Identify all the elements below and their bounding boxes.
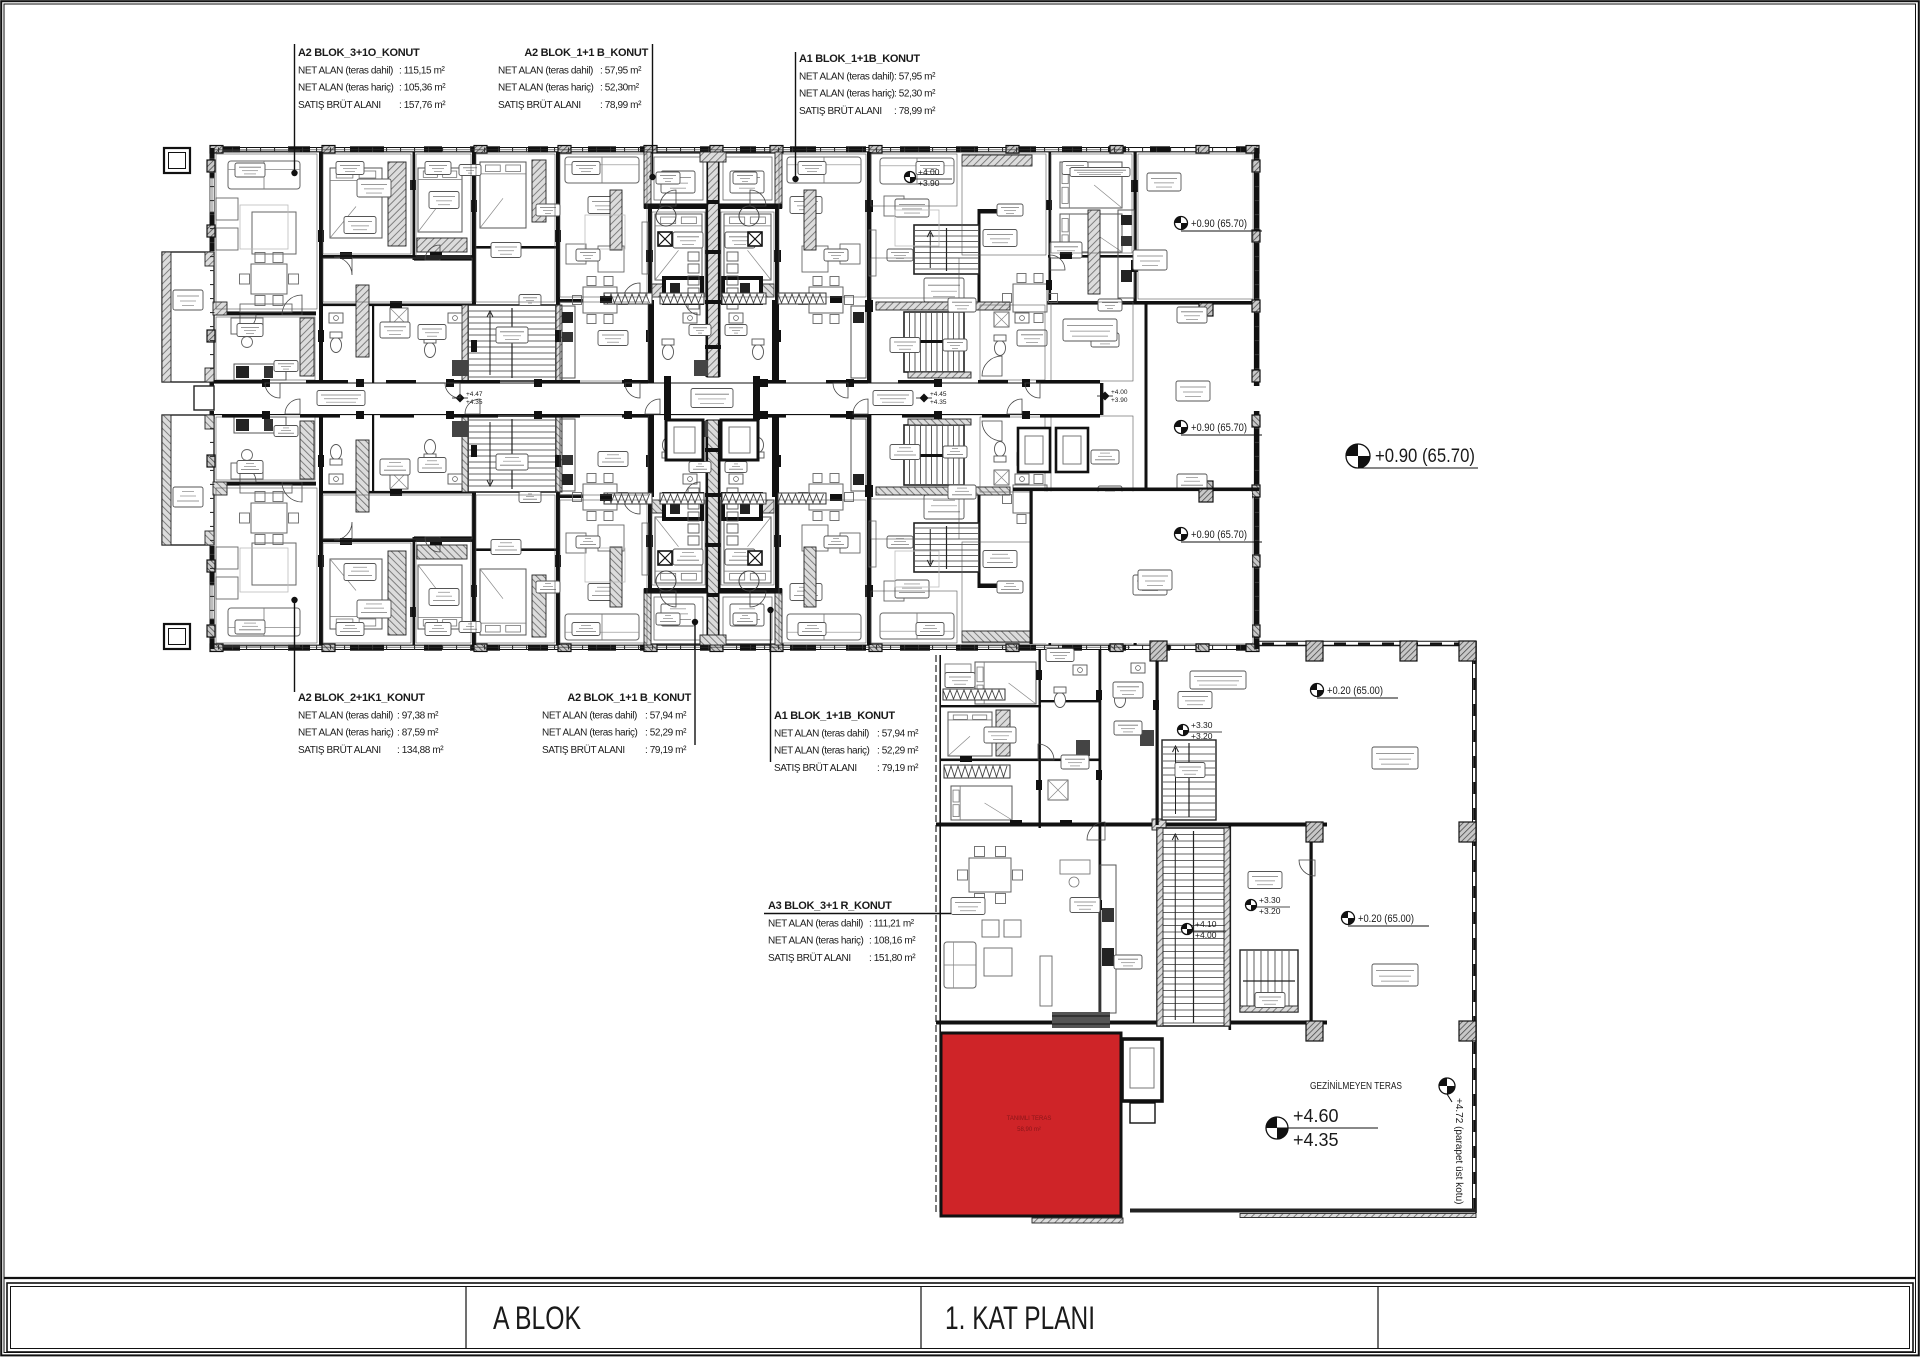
svg-text:: 157,76 m²: : 157,76 m² — [399, 100, 446, 111]
svg-text:SATIŞ BRÜT ALANI: SATIŞ BRÜT ALANI — [774, 762, 857, 774]
svg-text:A1 BLOK_1+1B_KONUT: A1 BLOK_1+1B_KONUT — [774, 710, 895, 722]
svg-text:+4.47: +4.47 — [466, 391, 483, 398]
svg-text:+0.20 (65.00): +0.20 (65.00) — [1327, 685, 1383, 697]
svg-text:+0.90 (65.70): +0.90 (65.70) — [1191, 218, 1247, 230]
svg-text:+4.72 (parapet üst kotu): +4.72 (parapet üst kotu) — [1453, 1098, 1464, 1204]
svg-text:: 78,99 m²: : 78,99 m² — [894, 106, 936, 117]
svg-text:: 52,29 m²: : 52,29 m² — [877, 746, 919, 757]
svg-text:A BLOK: A BLOK — [493, 1300, 581, 1336]
svg-text:A2 BLOK_3+1O_KONUT: A2 BLOK_3+1O_KONUT — [298, 47, 420, 59]
svg-text:NET ALAN (teras hariç): NET ALAN (teras hariç) — [768, 936, 864, 947]
svg-text:: 57,94 m²: : 57,94 m² — [877, 729, 919, 740]
svg-text:+4.60: +4.60 — [1293, 1106, 1339, 1126]
svg-text:+4.35: +4.35 — [1293, 1130, 1339, 1150]
svg-text:NET ALAN (teras hariç): NET ALAN (teras hariç) — [298, 728, 394, 739]
svg-text:SATIŞ BRÜT ALANI: SATIŞ BRÜT ALANI — [498, 99, 581, 111]
svg-text:: 111,21 m²: : 111,21 m² — [869, 919, 915, 930]
svg-text:NET ALAN (teras hariç): NET ALAN (teras hariç) — [542, 728, 638, 739]
svg-text:+3.30: +3.30 — [1259, 895, 1281, 905]
svg-text:NET ALAN (teras dahil): NET ALAN (teras dahil) — [799, 72, 894, 83]
svg-text:+3.30: +3.30 — [1191, 720, 1213, 730]
svg-text:A2 BLOK_1+1 B_KONUT: A2 BLOK_1+1 B_KONUT — [567, 692, 691, 704]
svg-text:: 115,15 m²: : 115,15 m² — [399, 66, 446, 77]
svg-text:SATIŞ BRÜT ALANI: SATIŞ BRÜT ALANI — [298, 744, 381, 756]
svg-text:A1 BLOK_1+1B_KONUT: A1 BLOK_1+1B_KONUT — [799, 53, 920, 65]
svg-text:NET ALAN (teras hariç): NET ALAN (teras hariç) — [799, 89, 895, 100]
svg-text:+4.00: +4.00 — [1111, 389, 1128, 396]
svg-text:+4.00: +4.00 — [1195, 930, 1217, 940]
svg-text:A2 BLOK_2+1K1_KONUT: A2 BLOK_2+1K1_KONUT — [298, 692, 425, 704]
svg-text:NET ALAN (teras hariç): NET ALAN (teras hariç) — [498, 83, 594, 94]
svg-text:TANIMLI TERAS: TANIMLI TERAS — [1007, 1116, 1052, 1122]
svg-text:A2 BLOK_1+1 B_KONUT: A2 BLOK_1+1 B_KONUT — [524, 47, 648, 59]
svg-text:NET ALAN (teras dahil): NET ALAN (teras dahil) — [298, 711, 393, 722]
svg-text:+0.90 (65.70): +0.90 (65.70) — [1191, 422, 1247, 434]
svg-text:+4.10: +4.10 — [1195, 919, 1217, 929]
svg-text:NET ALAN (teras dahil): NET ALAN (teras dahil) — [774, 729, 869, 740]
svg-text:1. KAT PLANI: 1. KAT PLANI — [945, 1300, 1095, 1336]
svg-text:: 108,16 m²: : 108,16 m² — [869, 936, 916, 947]
svg-text:+0.90 (65.70): +0.90 (65.70) — [1191, 529, 1247, 541]
svg-text:+3.90: +3.90 — [1111, 397, 1128, 404]
svg-text:A3 BLOK_3+1 R_KONUT: A3 BLOK_3+1 R_KONUT — [768, 900, 892, 912]
svg-text:: 52,30m²: : 52,30m² — [600, 83, 640, 94]
svg-text:: 105,36 m²: : 105,36 m² — [399, 83, 446, 94]
svg-text:SATIŞ BRÜT ALANI: SATIŞ BRÜT ALANI — [768, 952, 851, 964]
svg-text:SATIŞ BRÜT ALANI: SATIŞ BRÜT ALANI — [542, 744, 625, 756]
svg-text:+4.00: +4.00 — [918, 167, 940, 177]
svg-text:: 87,59 m²: : 87,59 m² — [397, 728, 439, 739]
svg-text:GEZİNİLMEYEN TERAS: GEZİNİLMEYEN TERAS — [1310, 1079, 1402, 1092]
svg-text:NET ALAN (teras hariç): NET ALAN (teras hariç) — [774, 746, 870, 757]
svg-text:: 79,19 m²: : 79,19 m² — [877, 763, 919, 774]
svg-text:: 78,99 m²: : 78,99 m² — [600, 100, 642, 111]
svg-text:NET ALAN (teras hariç): NET ALAN (teras hariç) — [298, 83, 394, 94]
svg-text:+3.20: +3.20 — [1191, 731, 1213, 741]
svg-text:+0.90 (65.70): +0.90 (65.70) — [1375, 446, 1475, 467]
svg-text:+3.90: +3.90 — [918, 178, 940, 188]
svg-text:: 97,38 m²: : 97,38 m² — [397, 711, 439, 722]
svg-text:: 79,19 m²: : 79,19 m² — [645, 745, 687, 756]
svg-text:58,90 m²: 58,90 m² — [1017, 1127, 1041, 1133]
svg-text:: 151,80 m²: : 151,80 m² — [869, 953, 916, 964]
svg-text:+4.35: +4.35 — [930, 399, 947, 406]
svg-text:: 52,29 m²: : 52,29 m² — [645, 728, 687, 739]
svg-text:NET ALAN (teras dahil): NET ALAN (teras dahil) — [298, 66, 393, 77]
svg-text:+3.20: +3.20 — [1259, 906, 1281, 916]
svg-text:NET ALAN (teras dahil): NET ALAN (teras dahil) — [768, 919, 863, 930]
svg-text:: 57,95 m²: : 57,95 m² — [894, 72, 936, 83]
svg-text:SATIŞ BRÜT ALANI: SATIŞ BRÜT ALANI — [799, 105, 882, 117]
svg-text:SATIŞ BRÜT ALANI: SATIŞ BRÜT ALANI — [298, 99, 381, 111]
svg-text:: 134,88 m²: : 134,88 m² — [397, 745, 444, 756]
svg-text:: 57,94 m²: : 57,94 m² — [645, 711, 687, 722]
svg-text:+4.45: +4.45 — [930, 391, 947, 398]
svg-text:NET ALAN (teras dahil): NET ALAN (teras dahil) — [542, 711, 637, 722]
svg-text:: 52,30 m²: : 52,30 m² — [894, 89, 936, 100]
svg-text:: 57,95 m²: : 57,95 m² — [600, 66, 642, 77]
svg-text:+0.20 (65.00): +0.20 (65.00) — [1358, 913, 1414, 925]
svg-text:NET ALAN (teras dahil): NET ALAN (teras dahil) — [498, 66, 593, 77]
